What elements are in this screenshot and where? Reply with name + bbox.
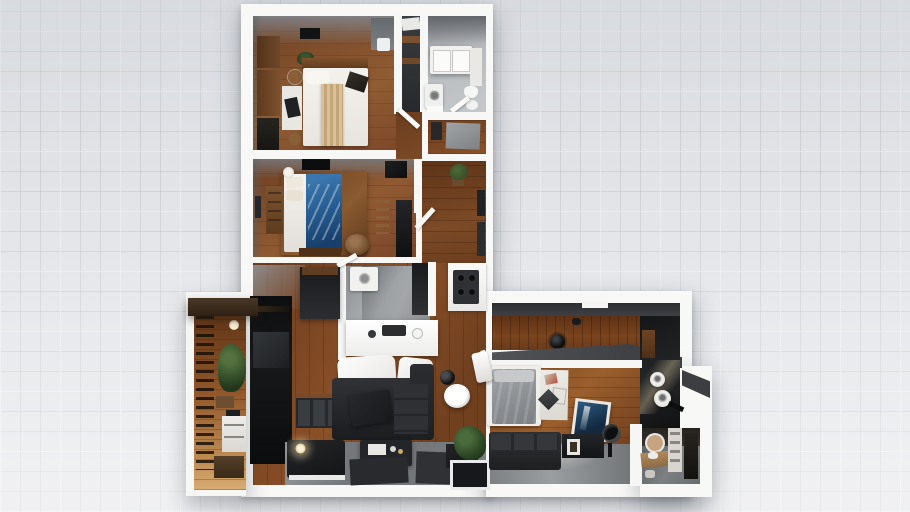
chaise-light-ball [295,443,306,454]
kitchen-wall-right [428,262,436,316]
bedroom2-pillow-a [286,176,304,188]
bathroom1-sink-left [433,50,451,72]
kitchen-dark-door [412,263,428,315]
utility-brown-box [642,330,655,358]
coffee-table-cup [398,449,403,454]
bedroom2-wardrobe-shelves [268,192,281,228]
bedroom1-basket [287,69,303,85]
balcony-plant [218,344,246,392]
sofa-ottoman [348,389,394,427]
bedroom2-foot-bench [299,248,341,256]
balcony-cabinet-line-a [224,424,244,426]
wing-wall-notch [582,301,608,308]
sofa-cushion-lines [394,384,428,434]
bedroom3-pillow [494,370,534,382]
kitchen-island-sink [382,325,406,336]
wing-small-object [572,318,581,325]
bathroom2-niche-items [670,432,680,468]
coffee-table-tray [368,444,386,455]
bedroom2-tv-panel [302,159,330,170]
bathroom1-wall-shade [428,16,486,44]
kitchen-island-bowl [412,328,423,339]
wc-mat [446,122,481,149]
bathroom1-shelf-column [470,48,482,86]
wall-under-bathroom1 [420,112,493,120]
wall-bedroom2-corridor [414,159,422,213]
corridor-wall-art-b [477,222,485,256]
wall-under-wc [428,154,486,161]
bathroom2-door [684,433,698,479]
bedroom1-dark-cabinet [257,118,279,152]
bedroom1-tv-panel [300,28,320,39]
bedroom2-ladder-shelf [376,200,389,234]
closet-shelf-a [402,36,420,43]
bedroom2-wall-art [255,196,261,218]
bedroom1-wardrobe-lower [257,70,280,116]
coffee-table-bowl [390,446,396,452]
balcony-cabinet [222,416,246,452]
bedroom3-floor-lamp [602,424,621,443]
bedroom1-pleated-runner [321,84,343,146]
bedroom2-ottoman [345,234,369,255]
bedroom1-pillow-left [306,70,331,84]
tv-shelf-glow [253,306,289,312]
framed-floor-mat [450,460,490,490]
corridor-plant [450,164,468,180]
burner-1 [457,274,465,282]
tv-wall-unit [250,296,292,464]
wall-under-bedroom1 [243,150,400,159]
bedroom3-lamp-stand [608,443,612,457]
floor-mat-a [349,457,408,486]
bedroom2-wall-lamp [283,167,294,178]
closet-box-white [401,17,420,31]
corridor-wall-art-a [477,190,485,216]
balcony-cabinet-line-b [224,436,244,438]
closet-unit [400,16,422,116]
bedroom3-console-frame-art [570,442,577,452]
living-plant [454,426,486,460]
tv-screen [253,332,289,368]
balcony-shelf [216,396,234,408]
kitchen-washer-circle [358,272,371,285]
bedroom1-wardrobe-upper [257,36,280,68]
bedroom3-art-print-red [544,373,558,385]
bedroom3-sofa-cushions [491,434,559,450]
bathroom2-sink [648,452,658,459]
bathroom1-sink-right [452,50,470,72]
bedroom2-duvet-pattern [308,184,340,240]
burner-3 [457,288,465,296]
bedroom2-pillow-b [286,190,304,202]
bedroom1-basket-2 [288,132,302,146]
bathroom2-stool [645,470,655,478]
bedroom2-media-column [396,200,412,257]
balcony-roof [188,298,258,316]
wing-pendant-lamp [550,334,565,349]
balcony-wall-lamp [229,320,239,330]
chaise-baseboard [289,475,345,480]
bathroom2-round-mirror [645,433,665,453]
burner-4 [468,288,476,296]
burner-2 [468,274,476,282]
kitchen-island-bowl-dark [368,330,376,338]
side-table-round [444,384,470,408]
balcony-railing [196,316,214,470]
floor-lamp-head [440,370,455,385]
bedroom1-white-bin [377,38,390,51]
wc-dark-fixture [431,122,442,140]
floor-plan-scene [0,0,910,512]
utility-roll-a [650,372,665,387]
balcony-mat [214,456,244,478]
living-wardrobe-top [302,267,338,275]
wall-bed1-closet [394,14,402,114]
bathroom1-washer-drum [429,90,440,101]
closet-shelf-b [402,58,420,64]
bedroom2-speaker-box [385,161,407,178]
